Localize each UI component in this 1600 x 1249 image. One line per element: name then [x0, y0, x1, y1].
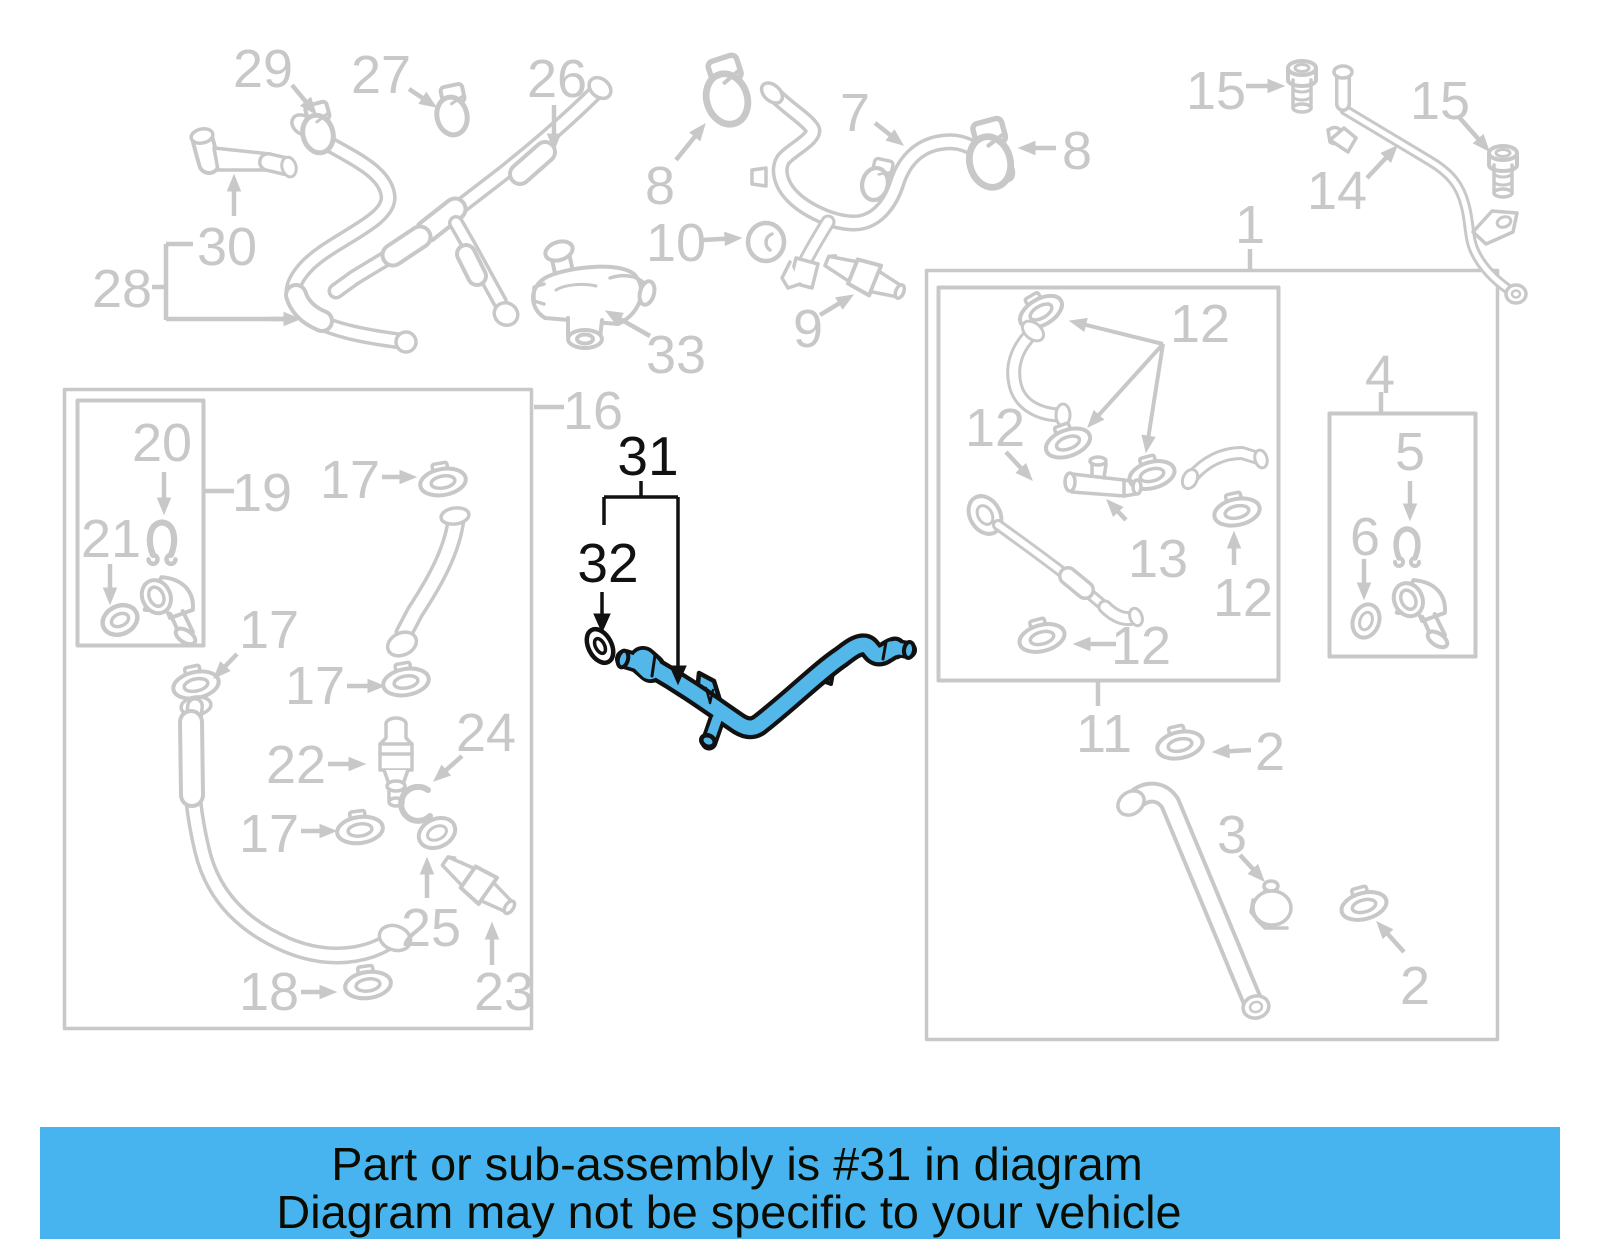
svg-text:17: 17: [285, 656, 345, 716]
svg-text:32: 32: [577, 532, 638, 594]
svg-text:18: 18: [239, 962, 299, 1022]
svg-text:3: 3: [1217, 805, 1247, 865]
svg-text:8: 8: [1062, 121, 1092, 181]
svg-text:11: 11: [1076, 704, 1132, 764]
svg-text:10: 10: [646, 213, 706, 273]
svg-text:8: 8: [645, 156, 675, 216]
svg-text:12: 12: [1213, 568, 1273, 628]
svg-text:15: 15: [1186, 61, 1246, 121]
svg-text:31: 31: [617, 425, 678, 487]
svg-text:15: 15: [1410, 71, 1470, 131]
svg-text:24: 24: [456, 703, 516, 763]
svg-text:9: 9: [793, 299, 823, 359]
svg-text:21: 21: [81, 509, 141, 569]
svg-text:2: 2: [1400, 956, 1430, 1016]
svg-text:12: 12: [1170, 294, 1230, 354]
svg-text:4: 4: [1365, 345, 1395, 405]
svg-text:12: 12: [965, 398, 1025, 458]
svg-text:30: 30: [197, 217, 257, 277]
svg-text:26: 26: [527, 49, 587, 109]
svg-text:27: 27: [351, 45, 411, 105]
svg-text:19: 19: [232, 463, 292, 523]
svg-text:29: 29: [233, 39, 293, 99]
svg-text:13: 13: [1128, 529, 1188, 589]
svg-text:20: 20: [132, 413, 192, 473]
svg-text:17: 17: [320, 450, 380, 510]
svg-text:17: 17: [239, 600, 299, 660]
svg-text:2: 2: [1255, 722, 1285, 782]
svg-text:12: 12: [1111, 616, 1171, 676]
svg-text:1: 1: [1235, 195, 1265, 255]
svg-text:28: 28: [92, 259, 152, 319]
svg-text:7: 7: [840, 83, 870, 143]
svg-text:33: 33: [646, 325, 706, 385]
svg-text:25: 25: [401, 898, 461, 958]
svg-text:23: 23: [474, 962, 534, 1022]
svg-text:6: 6: [1350, 507, 1380, 567]
svg-text:Part or sub-assembly is #31 in: Part or sub-assembly is #31 in diagram: [331, 1138, 1143, 1190]
svg-text:Diagram may not be specific to: Diagram may not be specific to your vehi…: [276, 1186, 1181, 1238]
svg-text:22: 22: [266, 735, 326, 795]
svg-text:5: 5: [1395, 422, 1425, 482]
svg-text:16: 16: [563, 381, 623, 441]
svg-text:17: 17: [239, 804, 299, 864]
svg-text:14: 14: [1307, 161, 1367, 221]
